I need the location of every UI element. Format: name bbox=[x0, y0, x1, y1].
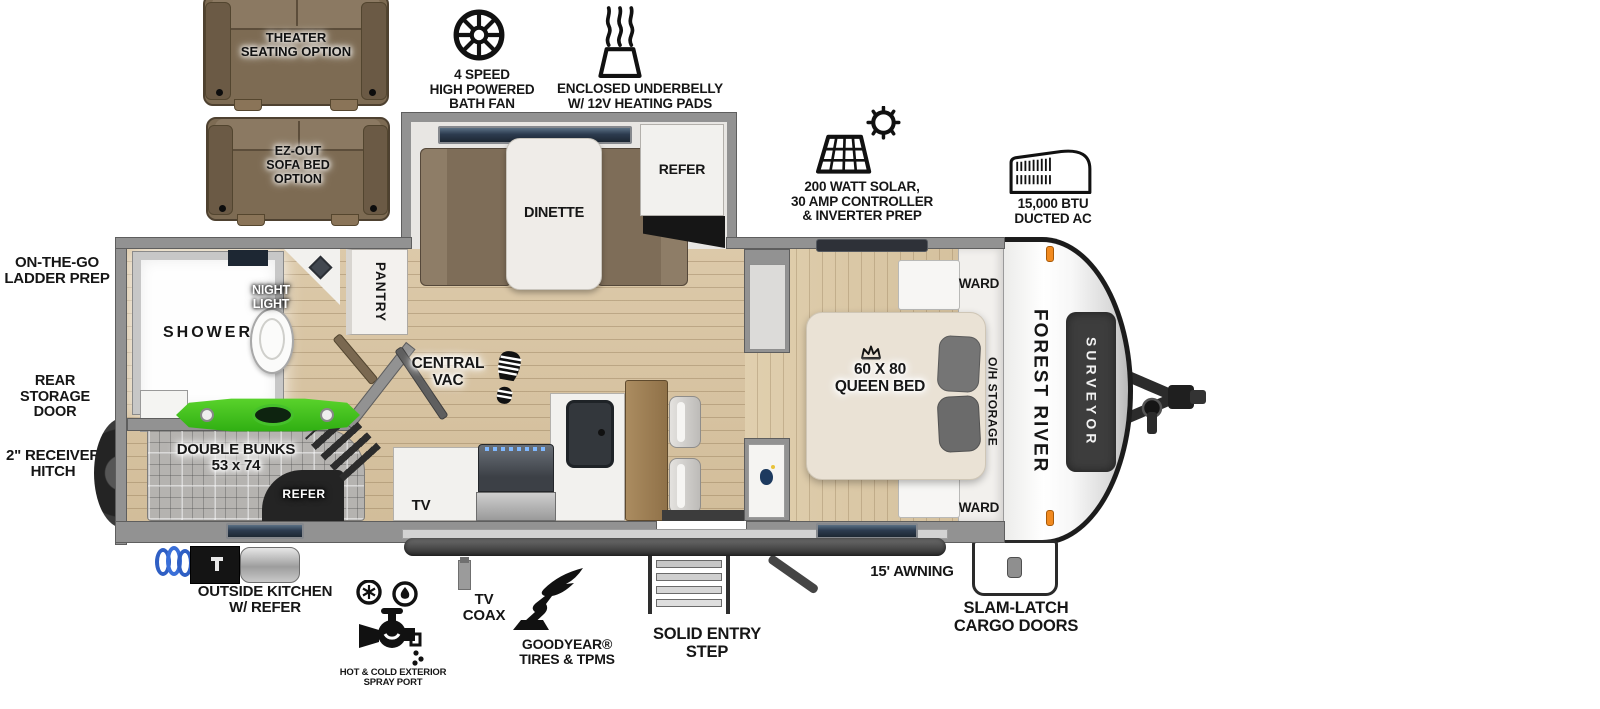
brand-model-label: SURVEYOR bbox=[1083, 337, 1098, 447]
central-vac-label: CENTRAL VAC bbox=[398, 356, 498, 389]
receiver-hitch-label: 2" RECEIVER HITCH bbox=[0, 448, 106, 480]
cargo-doors-label: SLAM-LATCH CARGO DOORS bbox=[918, 600, 1114, 636]
underbelly-label: ENCLOSED UNDERBELLY W/ 12V HEATING PADS bbox=[538, 82, 742, 111]
entry-door bbox=[748, 444, 785, 518]
awning-label: 15' AWNING bbox=[850, 564, 974, 580]
awning-tube bbox=[404, 538, 946, 556]
bedroom-roof-vent bbox=[816, 239, 928, 252]
sofa-bed-option: EZ-OUT SOFA BED OPTION bbox=[206, 117, 390, 221]
kayak-cockpit bbox=[252, 404, 294, 426]
outside-kitchen-window bbox=[226, 523, 304, 539]
rear-wall bbox=[115, 237, 127, 545]
stove-drawer bbox=[476, 492, 556, 521]
oh-storage-label: O/H STORAGE bbox=[980, 346, 1004, 458]
bath-fan-label: 4 SPEED HIGH POWERED BATH FAN bbox=[417, 68, 547, 112]
solar-panel-icon bbox=[816, 106, 908, 182]
shower-label: SHOWER bbox=[163, 324, 253, 341]
cargo-door bbox=[972, 540, 1058, 596]
ac-unit-icon bbox=[1008, 148, 1096, 196]
faucet bbox=[598, 429, 605, 436]
dinette-label: DINETTE bbox=[524, 206, 584, 222]
entry-threshold bbox=[662, 510, 744, 521]
stool bbox=[669, 458, 701, 514]
fan-icon bbox=[452, 8, 506, 62]
marker-light bbox=[1046, 246, 1054, 262]
toilet bbox=[250, 308, 294, 374]
ward-bottom-label: WARD bbox=[951, 501, 1007, 516]
stool bbox=[669, 396, 701, 448]
tv-label: TV bbox=[398, 498, 444, 514]
kayak bbox=[176, 398, 360, 432]
dinette-bench-left bbox=[420, 148, 512, 286]
double-bunks-label: DOUBLE BUNKS 53 x 74 bbox=[166, 442, 306, 474]
bedroom-cabinet bbox=[749, 264, 786, 350]
sofa-bed-label: EZ-OUT SOFA BED OPTION bbox=[226, 145, 370, 186]
dinette-table: DINETTE bbox=[506, 138, 602, 290]
ward-top-label: WARD bbox=[951, 277, 1007, 292]
ducted-ac-label: 15,000 BTU DUCTED AC bbox=[1005, 197, 1101, 226]
spray-port-icon bbox=[352, 580, 432, 666]
awning-arm bbox=[767, 554, 820, 595]
island-counter bbox=[625, 380, 668, 521]
refrigerator: REFER bbox=[640, 124, 724, 216]
floorplan-scene: THEATER SEATING OPTION EZ-OUT SOFA BED O… bbox=[0, 0, 1600, 709]
theater-seating-option: THEATER SEATING OPTION bbox=[203, 0, 389, 106]
ladder-prep-label: ON-THE-GO LADDER PREP bbox=[0, 255, 114, 287]
entry-steps bbox=[648, 556, 730, 614]
heating-pads-icon bbox=[586, 6, 654, 80]
pantry-label: PANTRY bbox=[372, 262, 387, 322]
goodyear-label: GOODYEAR® TIRES & TPMS bbox=[505, 637, 629, 667]
outside-kitchen-label: OUTSIDE KITCHEN W/ REFER bbox=[185, 584, 345, 616]
outside-kitchen-griddle bbox=[240, 547, 300, 583]
theater-seating-label: THEATER SEATING OPTION bbox=[223, 31, 369, 60]
bear-decal bbox=[760, 469, 773, 485]
spray-port-label: HOT & COLD EXTERIOR SPRAY PORT bbox=[334, 668, 452, 689]
entry-step-label: SOLID ENTRY STEP bbox=[638, 626, 776, 662]
bunk-refer-label: REFER bbox=[268, 488, 340, 501]
pantry: PANTRY bbox=[346, 249, 408, 335]
refer-label: REFER bbox=[659, 162, 705, 177]
bedroom-window bbox=[816, 523, 918, 539]
vanity-shelf bbox=[228, 250, 268, 266]
solar-label: 200 WATT SOLAR, 30 AMP CONTROLLER & INVE… bbox=[770, 180, 954, 224]
head-pillow bbox=[937, 395, 982, 453]
night-light-label: NIGHT LIGHT bbox=[228, 284, 314, 311]
kitchen-sink bbox=[566, 400, 614, 468]
goodyear-wingfoot-icon bbox=[505, 562, 609, 636]
outside-kitchen-unit bbox=[190, 546, 240, 584]
rear-storage-label: REAR STORAGE DOOR bbox=[0, 374, 110, 421]
cargo-door-latch bbox=[1007, 557, 1022, 578]
tv-coax-jack bbox=[458, 560, 471, 590]
queen-bed-label: 60 X 80 QUEEN BED bbox=[810, 362, 950, 395]
crown-icon bbox=[859, 344, 883, 361]
brand-maker-label: FOREST RIVER bbox=[1024, 296, 1054, 486]
marker-light bbox=[1046, 510, 1054, 526]
brand-model-badge: SURVEYOR bbox=[1066, 312, 1116, 472]
stove bbox=[478, 444, 554, 492]
